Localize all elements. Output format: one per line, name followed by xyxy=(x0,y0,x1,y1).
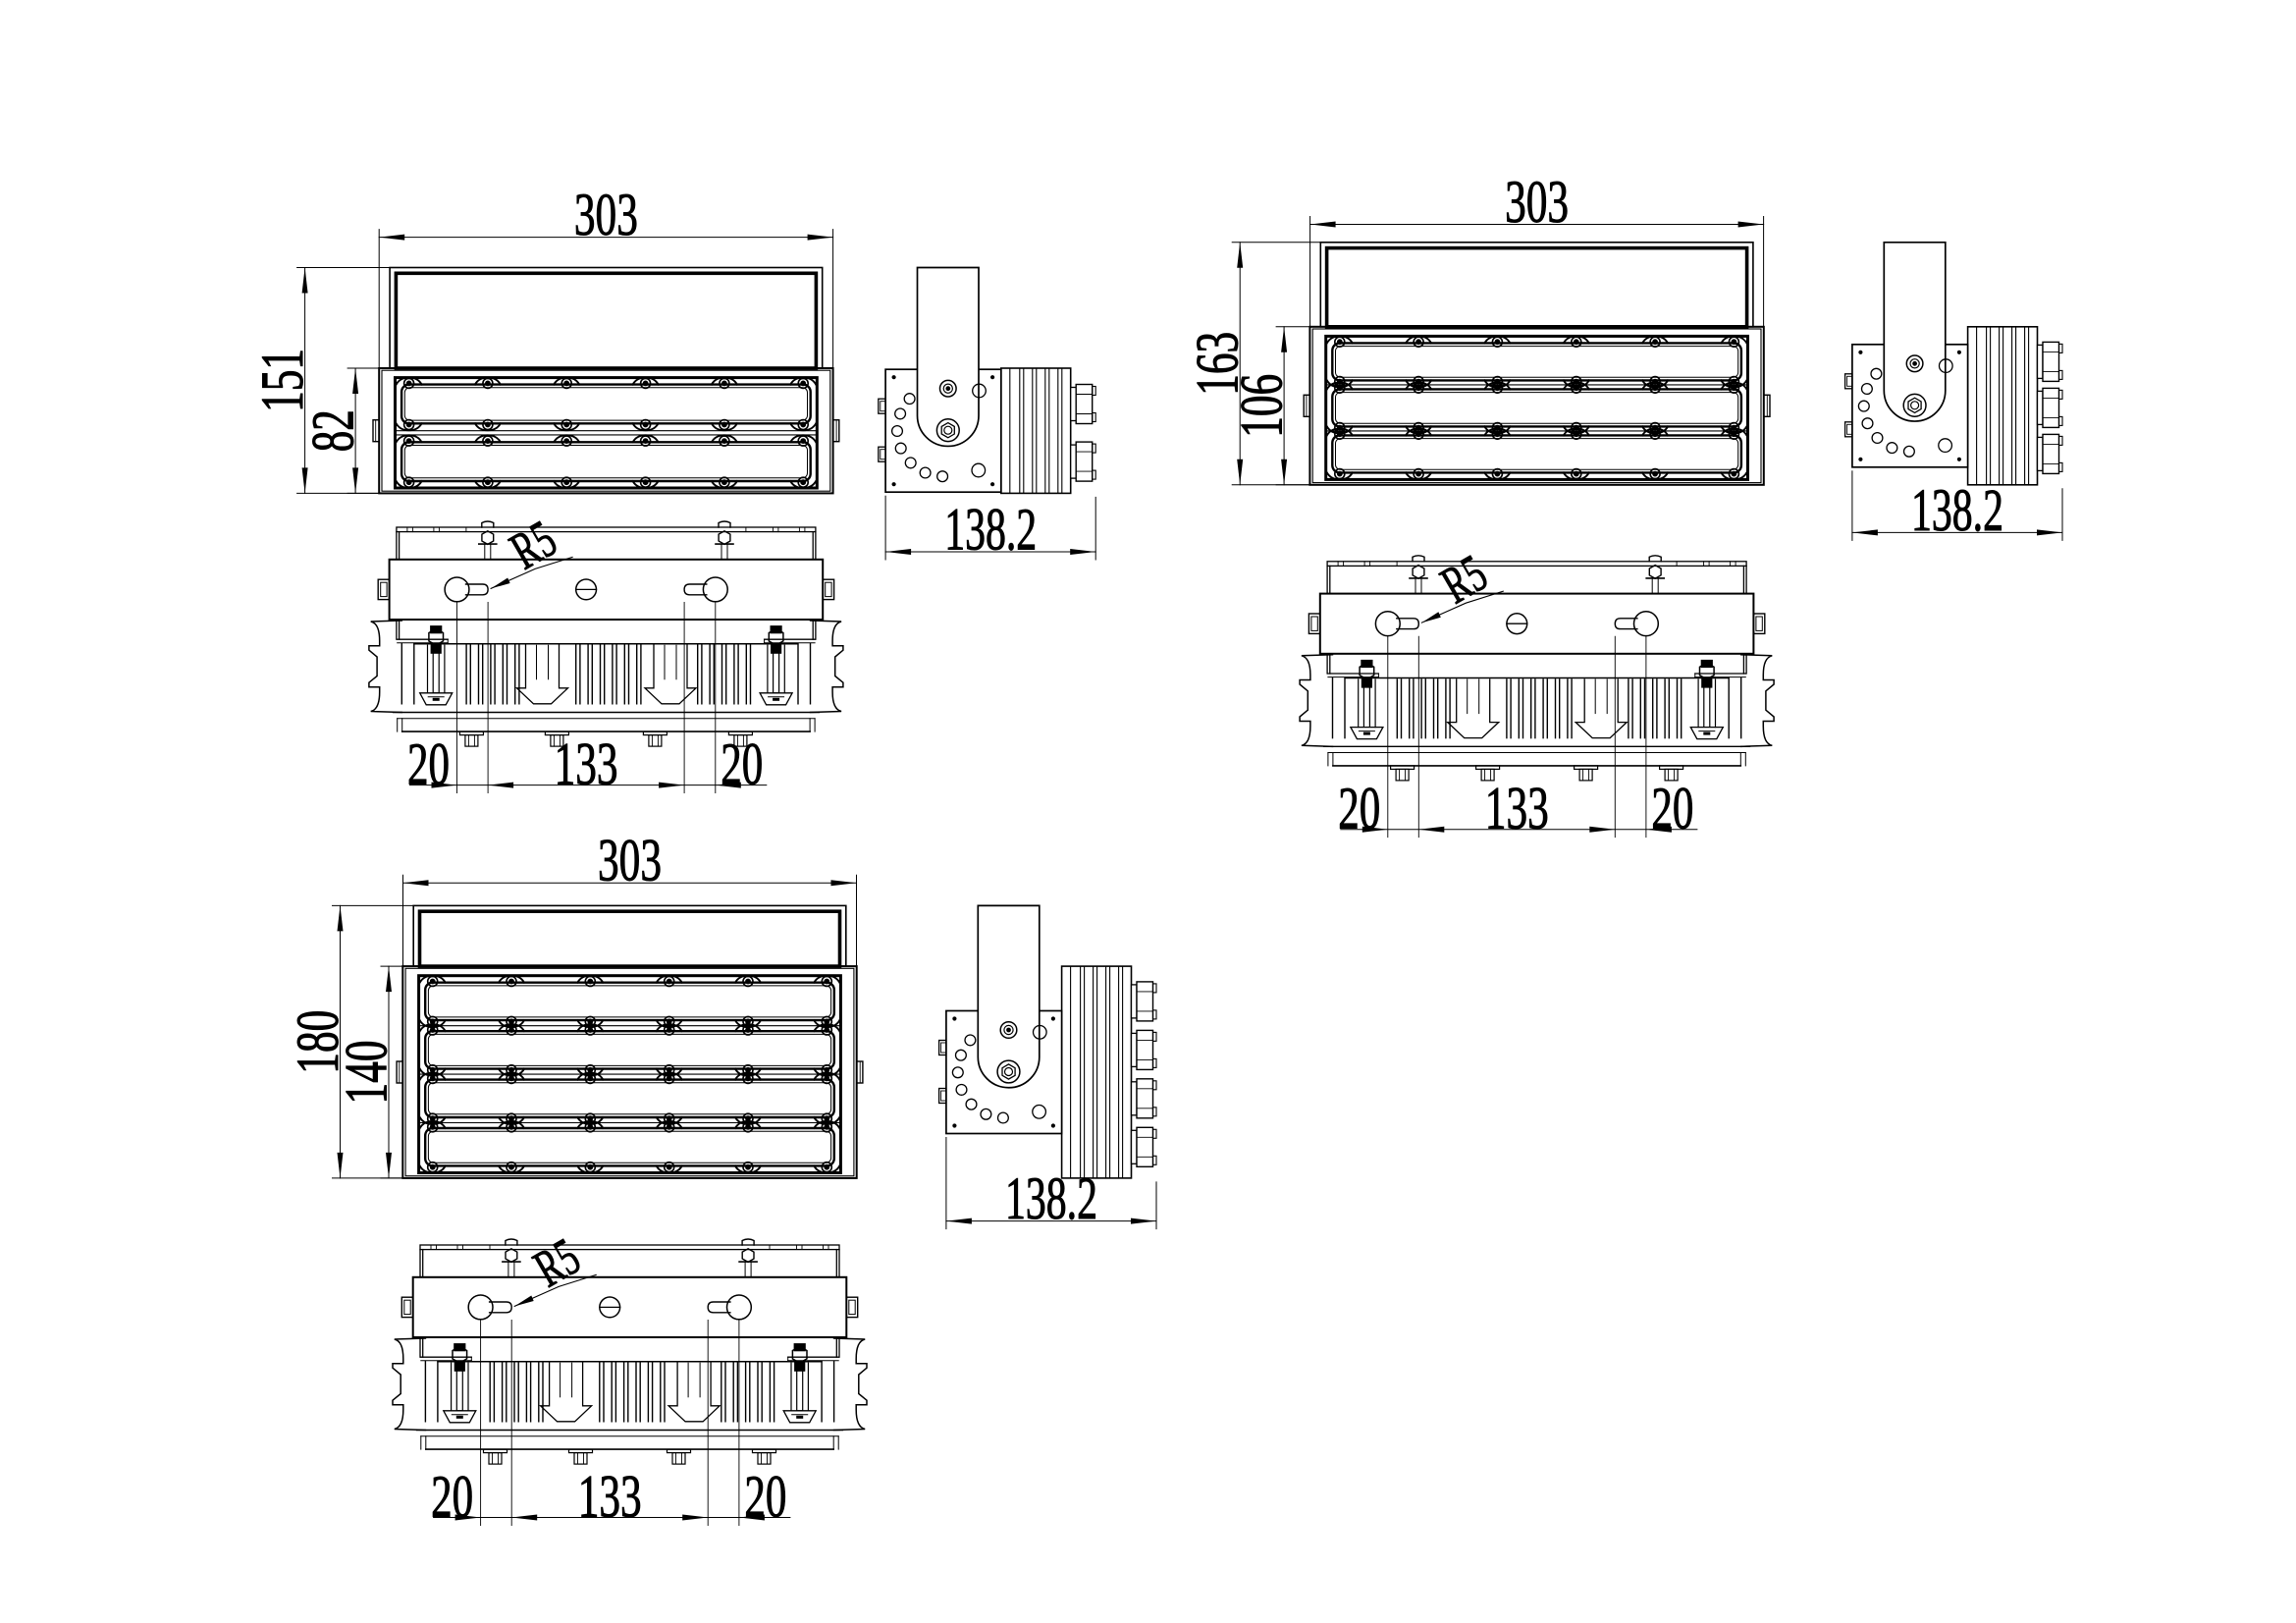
svg-text:138.2: 138.2 xyxy=(1911,478,2003,544)
svg-text:20: 20 xyxy=(1338,777,1380,842)
svg-text:303: 303 xyxy=(598,829,662,894)
svg-text:20: 20 xyxy=(431,1465,473,1531)
svg-text:20: 20 xyxy=(721,732,763,798)
svg-text:133: 133 xyxy=(1485,777,1549,842)
svg-text:140: 140 xyxy=(335,1041,400,1105)
svg-text:106: 106 xyxy=(1230,374,1296,438)
svg-text:82: 82 xyxy=(301,409,367,452)
svg-text:133: 133 xyxy=(555,732,618,798)
svg-text:138.2: 138.2 xyxy=(944,498,1037,564)
svg-text:138.2: 138.2 xyxy=(1005,1166,1097,1232)
svg-text:303: 303 xyxy=(1505,170,1569,236)
svg-text:20: 20 xyxy=(407,732,450,798)
svg-text:151: 151 xyxy=(250,349,316,412)
svg-text:20: 20 xyxy=(744,1465,786,1531)
svg-text:303: 303 xyxy=(574,183,638,248)
svg-text:20: 20 xyxy=(1651,777,1693,842)
svg-text:133: 133 xyxy=(578,1465,642,1531)
